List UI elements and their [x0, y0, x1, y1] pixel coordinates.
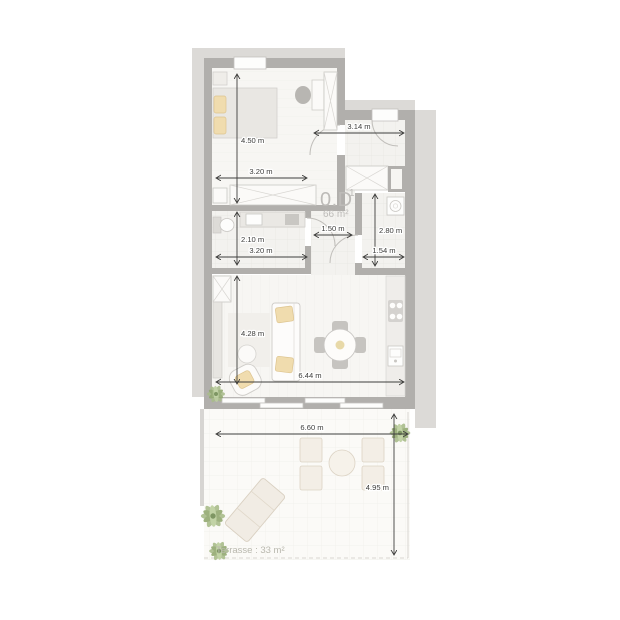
entry-door-opening [372, 109, 398, 121]
toilet [213, 217, 234, 233]
dim-bedroom-width: 3.20 m [249, 167, 272, 176]
dim-bedroom-height: 4.50 m [241, 136, 264, 145]
floor-plan-page: 4.50 m 3.20 m 3.14 m 2.10 m 3.20 m 1.50 … [0, 0, 620, 620]
dim-bathroom-height: 2.80 m [379, 226, 402, 235]
outdoor-chair [300, 466, 322, 490]
desk-chair [295, 86, 311, 104]
bedroom-window [234, 57, 266, 69]
cooktop [388, 300, 403, 322]
kitchen-sink [388, 346, 403, 366]
unit-code-superscript: 1 [349, 188, 355, 199]
sideboard [213, 302, 222, 378]
dim-bathroom-width: 1.54 m [372, 246, 395, 255]
nightstand [213, 72, 227, 85]
cushion [275, 306, 294, 323]
kitchen [386, 276, 405, 396]
dim-hall-width: 1.50 m [321, 224, 344, 233]
terrace-label: Terrasse : 33 m² [216, 545, 285, 556]
living-closet [213, 276, 231, 302]
washing-machine [387, 197, 404, 215]
unit-area: 66 m² [323, 209, 349, 220]
dim-terrace-height: 4.95 m [366, 483, 389, 492]
floor-plan-drawing: 4.50 m 3.20 m 3.14 m 2.10 m 3.20 m 1.50 … [0, 0, 620, 620]
closet [230, 185, 316, 205]
cushion [275, 356, 294, 373]
pillow [214, 96, 226, 113]
entry-closet [346, 166, 388, 190]
dim-living-height: 4.28 m [241, 329, 264, 338]
dim-terrace-width: 6.60 m [300, 423, 323, 432]
washbasin [246, 214, 262, 225]
outdoor-chair [362, 438, 384, 462]
dim-entry-width: 3.14 m [347, 122, 370, 131]
dim-shower-height: 2.10 m [241, 235, 264, 244]
coffee-table [238, 345, 256, 363]
technical-duct [388, 166, 405, 192]
table-centerpiece [336, 341, 345, 350]
vanity-appliance [285, 214, 299, 225]
dim-living-width: 6.44 m [298, 371, 321, 380]
unit-code: 0.D [320, 189, 353, 211]
pillow [214, 117, 226, 134]
cabinet [213, 188, 227, 203]
outdoor-chair [300, 438, 322, 462]
desk [312, 80, 324, 110]
kitchen-counter [386, 276, 405, 396]
wardrobe [324, 72, 337, 130]
outdoor-table [329, 450, 355, 476]
sofa [272, 303, 300, 381]
dim-shower-width: 3.20 m [249, 246, 272, 255]
